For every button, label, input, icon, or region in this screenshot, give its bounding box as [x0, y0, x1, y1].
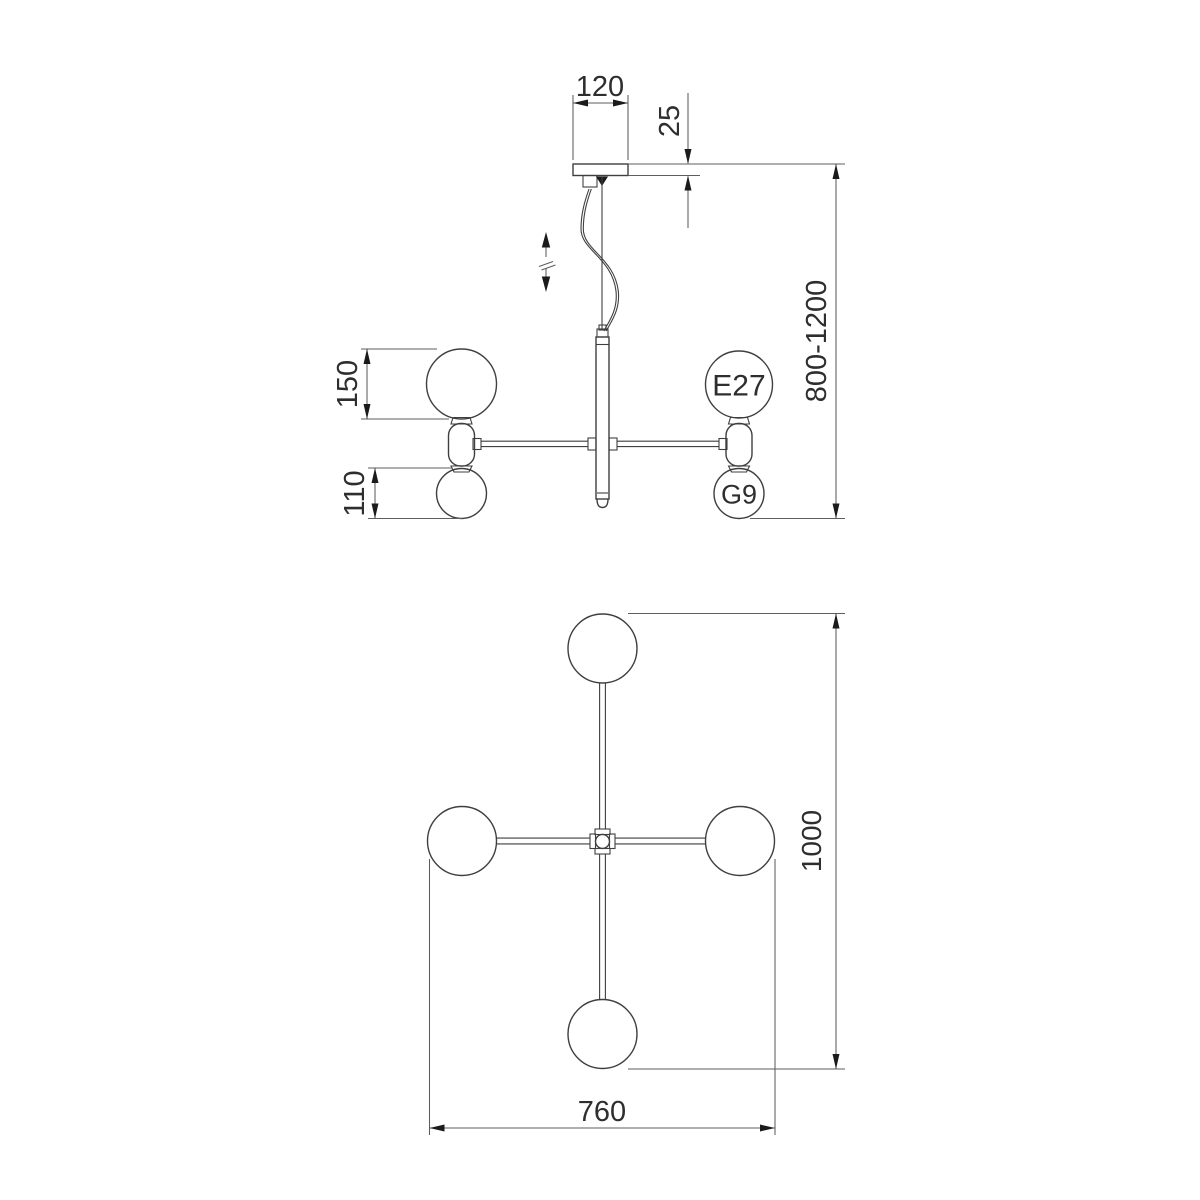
dim-label-plan-width: 760 — [578, 1096, 626, 1128]
hub-collar-top — [595, 829, 610, 835]
adjust-tick-2 — [542, 265, 556, 270]
adjust-tick-1 — [539, 262, 553, 267]
drawing-canvas: E27 G9 120 25 800-1200 — [0, 0, 1200, 1200]
plan-arms — [497, 683, 706, 1000]
arrowhead — [372, 504, 379, 519]
arrowhead — [833, 1054, 840, 1069]
rod-end-cap — [597, 499, 608, 508]
globe-small-left — [437, 469, 487, 519]
arrowhead — [685, 149, 692, 164]
arrowhead — [364, 404, 371, 419]
side-view: E27 G9 120 25 800-1200 — [332, 71, 845, 519]
dim-plan-depth: 1000 — [628, 614, 845, 1070]
canopy-outline — [573, 164, 628, 176]
dim-plan-width: 760 — [430, 859, 776, 1135]
arrowhead — [372, 468, 379, 483]
arrowhead — [833, 164, 840, 179]
dim-label-canopy-width: 120 — [576, 71, 624, 103]
arrowhead — [833, 504, 840, 519]
arrowhead — [760, 1125, 775, 1132]
hub-collar-bottom — [595, 849, 610, 855]
socket-label-e27: E27 — [712, 370, 765, 403]
hub-center — [596, 834, 610, 848]
plan-globe-bottom — [568, 1000, 637, 1069]
ceiling-canopy — [573, 164, 628, 187]
dim-label-large-globe: 150 — [332, 360, 364, 408]
dim-label-small-globe: 110 — [339, 470, 371, 516]
rod-body — [596, 337, 609, 499]
plan-globe-right — [706, 807, 775, 876]
plan-hub — [590, 829, 615, 854]
socket-body-left — [449, 424, 475, 467]
hub-collar-right — [610, 834, 616, 849]
hub-collar-left — [590, 834, 596, 849]
dim-label-hanging-height: 800-1200 — [801, 280, 833, 403]
dim-label-canopy-thickness: 25 — [654, 105, 686, 137]
cord-grip-box — [583, 176, 597, 188]
lamp-dimension-drawing: E27 G9 120 25 800-1200 — [0, 0, 1200, 1200]
dim-label-plan-depth: 1000 — [796, 810, 827, 872]
power-cord — [581, 189, 616, 331]
dim-canopy-thickness: 25 — [628, 93, 845, 228]
socket-body-right — [726, 424, 752, 467]
arrowhead — [685, 176, 692, 191]
top-view: 1000 760 — [428, 614, 846, 1136]
arrowhead — [430, 1125, 445, 1132]
arm-hub-connector-right — [609, 438, 617, 450]
arrowhead — [364, 349, 371, 364]
suspension — [581, 177, 619, 331]
arm-hub-connector-left — [588, 438, 596, 450]
adjust-up-arrowhead — [542, 232, 550, 248]
adjust-down-arrowhead — [542, 277, 550, 293]
dim-canopy-width: 120 — [573, 71, 628, 160]
left-lamp-assembly — [427, 349, 497, 519]
plan-globe-left — [428, 807, 497, 876]
height-adjust-icon — [539, 232, 556, 292]
dim-hanging-height: 800-1200 — [750, 164, 845, 519]
right-lamp-assembly: E27 G9 — [706, 351, 773, 519]
cross-arm — [473, 438, 727, 450]
plan-globes — [428, 614, 775, 1069]
globe-large-left — [427, 349, 497, 419]
arrowhead — [833, 614, 840, 629]
central-rod — [596, 325, 609, 508]
socket-label-g9: G9 — [721, 480, 757, 510]
dim-large-globe: 150 — [332, 349, 449, 419]
plan-globe-top — [568, 614, 637, 683]
